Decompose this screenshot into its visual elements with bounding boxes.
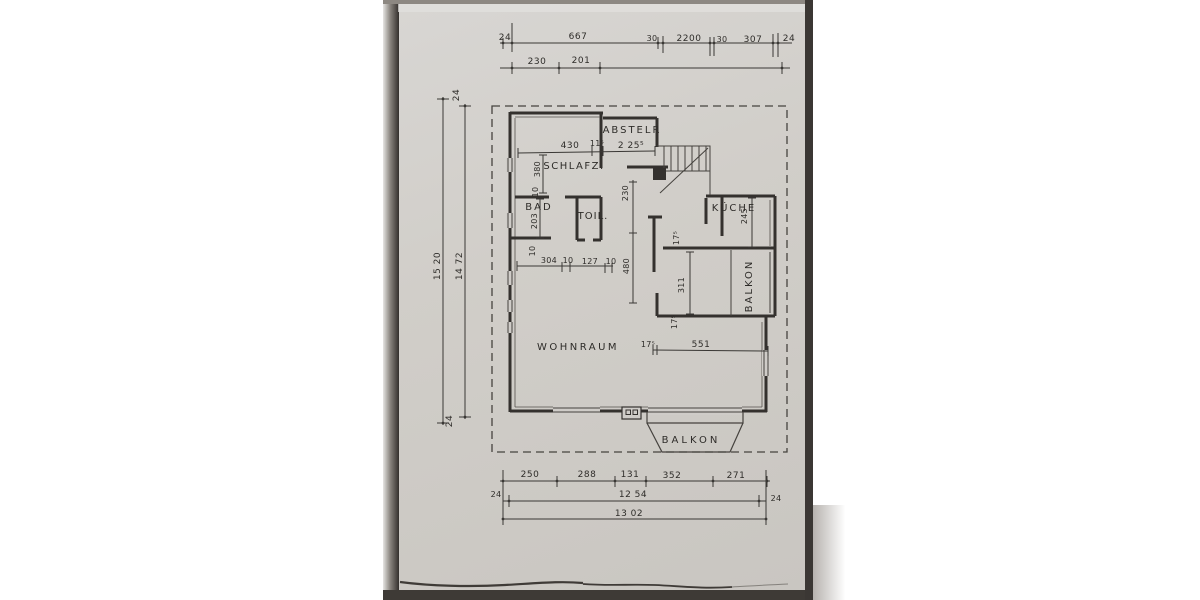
dim-115: 11⁵ bbox=[590, 139, 604, 148]
dim-10d: 10 bbox=[606, 257, 617, 266]
dim-top-30b: 30 bbox=[717, 35, 728, 44]
room-label-toilette: TOIL. bbox=[577, 211, 609, 222]
dim-380: 380 bbox=[533, 161, 542, 177]
dim-left-24-top: 24 bbox=[452, 89, 462, 101]
room-label-kueche: KÜCHE bbox=[712, 201, 756, 214]
dim-175b: 17⁵ bbox=[670, 315, 679, 329]
dim-10a: 10 bbox=[531, 187, 540, 198]
paper-top-highlight bbox=[398, 4, 805, 12]
dim-24-br: 24 bbox=[771, 494, 782, 503]
dim-352: 352 bbox=[663, 471, 682, 481]
dim-left-24-bottom: 24 bbox=[445, 415, 455, 427]
dim-top-24-left: 24 bbox=[499, 33, 511, 43]
dim-top-307: 307 bbox=[744, 35, 763, 45]
balcony-bottom bbox=[647, 412, 743, 452]
crease-line bbox=[400, 582, 788, 588]
dim-left-1472: 14 72 bbox=[455, 252, 465, 280]
dim-10c: 10 bbox=[563, 256, 574, 265]
room-label-bad: BAD bbox=[525, 202, 552, 213]
room-label-balkon-right: BALKON bbox=[744, 260, 755, 313]
dim-top-24-right: 24 bbox=[783, 34, 795, 44]
dim-1302: 13 02 bbox=[615, 509, 643, 519]
chimney-box bbox=[622, 407, 641, 419]
dim-288: 288 bbox=[578, 470, 597, 480]
dim-left-1520: 15 20 bbox=[433, 252, 443, 280]
room-label-abstellraum: ABSTELR bbox=[603, 125, 662, 136]
dim-230v: 230 bbox=[621, 185, 630, 201]
dim-top-30a: 30 bbox=[647, 34, 658, 43]
dim-10b: 10 bbox=[528, 246, 537, 257]
dim-top-2200: 2200 bbox=[677, 34, 702, 44]
dim-480: 480 bbox=[622, 258, 631, 274]
dim-271: 271 bbox=[727, 471, 746, 481]
dim-top-667: 667 bbox=[569, 32, 588, 42]
stair-landing-block bbox=[653, 168, 666, 180]
room-label-balkon-bottom: BALKON bbox=[662, 435, 721, 446]
dim-2255: 2 25⁵ bbox=[618, 141, 644, 151]
dim-24-bl: 24 bbox=[491, 490, 502, 499]
dim-top-230: 230 bbox=[528, 57, 547, 67]
dim-127: 127 bbox=[582, 257, 598, 266]
dim-1254: 12 54 bbox=[619, 490, 647, 500]
room-label-schlafzimmer: SCHLAFZ. bbox=[543, 161, 604, 172]
dim-250: 250 bbox=[521, 470, 540, 480]
room-label-wohnraum: WOHNRAUM bbox=[537, 342, 619, 353]
dim-551: 551 bbox=[692, 340, 711, 350]
dashed-boundary bbox=[492, 106, 787, 452]
dim-top-201: 201 bbox=[572, 56, 591, 66]
floorplan-drawing: 24 667 30 2200 30 307 24 230 201 24 15 2… bbox=[0, 0, 1200, 600]
dim-311: 311 bbox=[677, 277, 686, 293]
dimension-lines bbox=[437, 23, 792, 525]
dim-175a: 17⁵ bbox=[672, 231, 681, 245]
labels: 24 667 30 2200 30 307 24 230 201 24 15 2… bbox=[433, 32, 795, 519]
dim-203: 203 bbox=[530, 213, 539, 229]
scanned-floorplan-page: 24 667 30 2200 30 307 24 230 201 24 15 2… bbox=[0, 0, 1200, 600]
dim-175c: 17⁵ bbox=[641, 340, 655, 349]
dim-131: 131 bbox=[621, 470, 640, 480]
dim-430: 430 bbox=[561, 141, 580, 151]
dim-304: 304 bbox=[541, 256, 557, 265]
